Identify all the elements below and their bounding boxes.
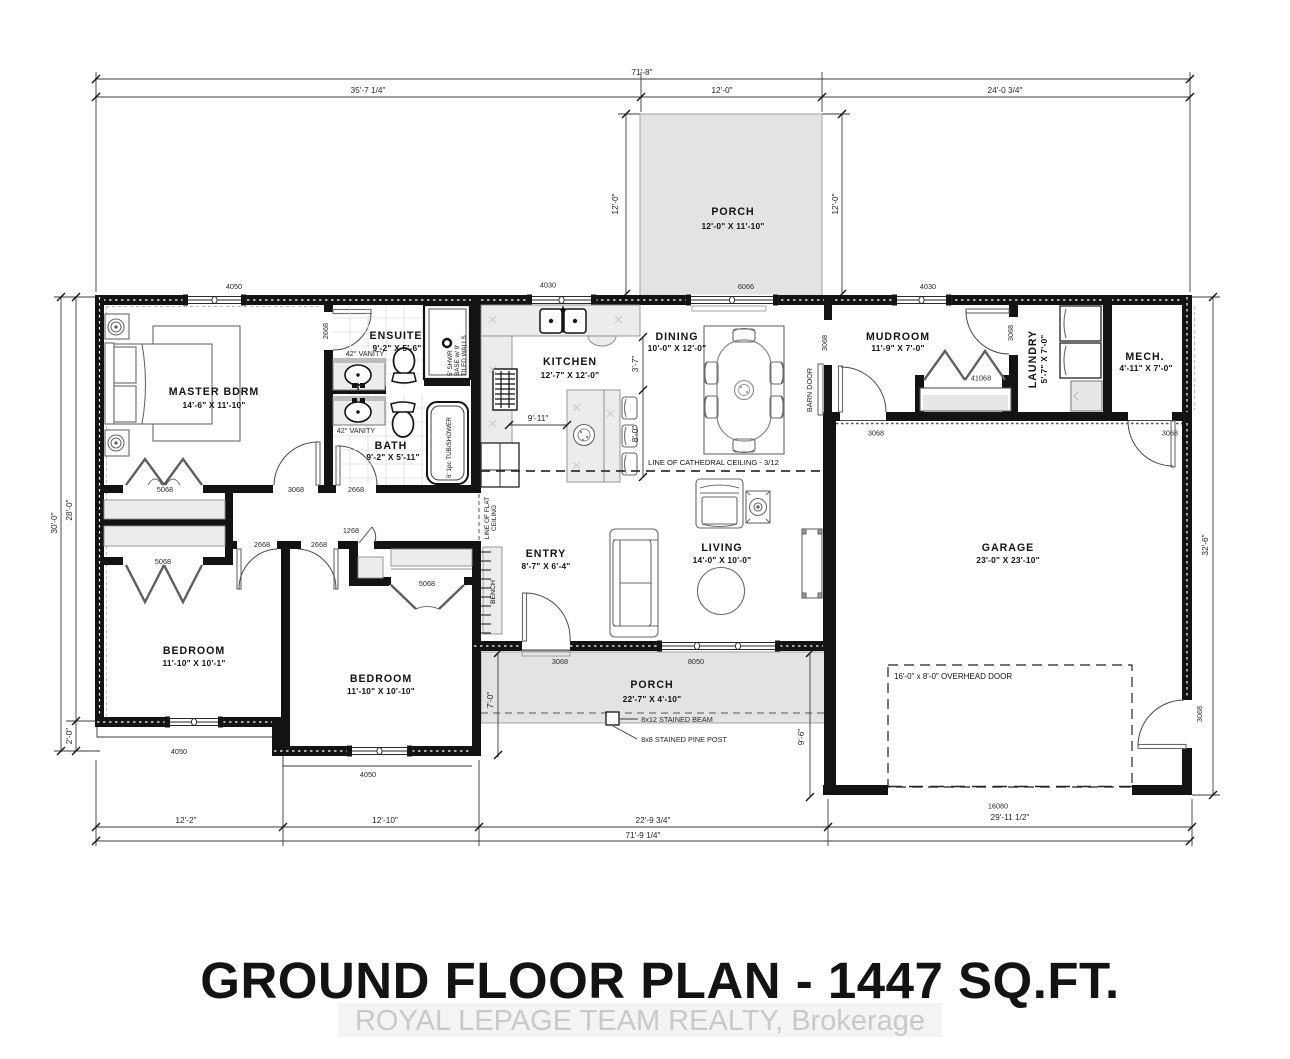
svg-text:TILED WALLS: TILED WALLS [461, 335, 468, 376]
svg-text:12'-2": 12'-2" [175, 815, 196, 825]
svg-text:3068: 3068 [868, 429, 884, 438]
svg-text:KITCHEN: KITCHEN [543, 356, 597, 368]
svg-text:14'-6" X 11'-10": 14'-6" X 11'-10" [182, 400, 245, 410]
svg-text:9'-11": 9'-11" [528, 413, 549, 423]
svg-text:3068: 3068 [820, 335, 829, 351]
svg-text:MECH.: MECH. [1125, 351, 1164, 363]
svg-text:22'-7" X 4'-10": 22'-7" X 4'-10" [623, 694, 682, 704]
svg-text:29'-11 1/2": 29'-11 1/2" [991, 812, 1030, 822]
svg-text:DINING: DINING [655, 331, 698, 343]
svg-text:2'-0": 2'-0" [64, 728, 74, 745]
svg-text:CEILING: CEILING [491, 505, 498, 531]
svg-text:12'-7" X 12'-0": 12'-7" X 12'-0" [541, 370, 600, 380]
svg-text:12'-10": 12'-10" [372, 815, 398, 825]
svg-text:22'-9 3/4": 22'-9 3/4" [636, 815, 671, 825]
svg-text:LIVING: LIVING [701, 542, 742, 554]
svg-text:11'-9" X 7'-0": 11'-9" X 7'-0" [871, 343, 924, 353]
svg-text:10'-0" X 12'-0": 10'-0" X 12'-0" [648, 343, 707, 353]
svg-text:16080: 16080 [988, 802, 1008, 811]
svg-text:12'-0": 12'-0" [830, 193, 840, 214]
svg-text:11'-10" X 10'-1": 11'-10" X 10'-1" [162, 658, 225, 668]
svg-text:24'-0 3/4": 24'-0 3/4" [988, 85, 1023, 95]
svg-text:2668: 2668 [321, 323, 330, 339]
svg-text:12'-0": 12'-0" [711, 85, 732, 95]
svg-text:4030: 4030 [540, 281, 556, 290]
svg-text:3'-7": 3'-7" [630, 356, 640, 373]
svg-text:GARAGE: GARAGE [982, 542, 1035, 554]
svg-text:71'-8": 71'-8" [631, 67, 652, 77]
svg-text:ROYAL LEPAGE TEAM REALTY, Brok: ROYAL LEPAGE TEAM REALTY, Brokerage [355, 1005, 925, 1037]
svg-text:5' SHWR: 5' SHWR [447, 350, 454, 376]
svg-text:8'-0": 8'-0" [630, 426, 640, 443]
svg-text:MUDROOM: MUDROOM [866, 331, 930, 343]
svg-text:8x12 STAINED BEAM: 8x12 STAINED BEAM [641, 715, 713, 724]
svg-text:ENTRY: ENTRY [526, 548, 567, 560]
svg-text:2668: 2668 [311, 540, 327, 549]
svg-text:16'-0" x 8'-0" OVERHEAD DOOR: 16'-0" x 8'-0" OVERHEAD DOOR [894, 672, 1012, 681]
svg-text:7'-0": 7'-0" [485, 692, 495, 709]
svg-text:PORCH: PORCH [711, 206, 754, 218]
svg-text:BEDROOM: BEDROOM [350, 673, 412, 685]
svg-text:PORCH: PORCH [630, 679, 673, 691]
svg-text:5068: 5068 [157, 485, 173, 494]
svg-text:8'-7" X 6'-4": 8'-7" X 6'-4" [522, 561, 571, 571]
svg-text:5068: 5068 [419, 579, 435, 588]
svg-text:42" VANITY: 42" VANITY [346, 349, 385, 358]
svg-text:41068: 41068 [971, 374, 991, 383]
svg-text:71'-9 1/4": 71'-9 1/4" [626, 830, 661, 840]
svg-text:14'-0" X 10'-0": 14'-0" X 10'-0" [693, 555, 752, 565]
svg-text:9'-2" X 5'-11": 9'-2" X 5'-11" [366, 452, 419, 462]
svg-text:5'-7" X 7'-0": 5'-7" X 7'-0" [1039, 335, 1049, 384]
svg-text:3068: 3068 [1006, 325, 1015, 341]
svg-text:BENCH: BENCH [490, 580, 497, 604]
svg-text:3068: 3068 [552, 657, 568, 666]
svg-text:35'-7 1/4": 35'-7 1/4" [351, 85, 386, 95]
svg-text:23'-0" X 23'-10": 23'-0" X 23'-10" [976, 555, 1040, 565]
svg-text:8050: 8050 [688, 657, 704, 666]
svg-text:2668: 2668 [254, 540, 270, 549]
svg-text:4050: 4050 [171, 747, 187, 756]
svg-text:9'-6": 9'-6" [796, 729, 806, 746]
svg-text:LINE OF FLAT: LINE OF FLAT [484, 497, 491, 540]
svg-text:GROUND FLOOR PLAN - 1447 SQ.: GROUND FLOOR PLAN - 1447 SQ.FT. [200, 952, 1119, 1009]
svg-text:LINE OF CATHEDRAL CEILING - 3/: LINE OF CATHEDRAL CEILING - 3/12 [648, 458, 779, 467]
svg-text:LAUNDRY: LAUNDRY [1027, 330, 1039, 388]
svg-text:MASTER BDRM: MASTER BDRM [169, 386, 259, 398]
svg-text:12'-0" X 11'-10": 12'-0" X 11'-10" [701, 221, 764, 231]
svg-text:3068: 3068 [1162, 429, 1178, 438]
svg-text:12'-0": 12'-0" [610, 193, 620, 214]
svg-text:8x8 STAINED PINE POST: 8x8 STAINED PINE POST [641, 735, 727, 744]
svg-text:4050: 4050 [360, 770, 376, 779]
svg-text:6' 1pc TUB/SHOWER: 6' 1pc TUB/SHOWER [446, 417, 453, 478]
svg-text:28'-0": 28'-0" [64, 499, 74, 520]
svg-text:32'-6": 32'-6" [1200, 534, 1210, 555]
svg-text:2668: 2668 [348, 485, 364, 494]
svg-text:3068: 3068 [1195, 706, 1204, 722]
svg-text:BATH: BATH [375, 440, 408, 452]
svg-text:1268: 1268 [343, 526, 359, 535]
svg-text:30'-0": 30'-0" [49, 512, 59, 533]
svg-text:6066: 6066 [738, 282, 754, 291]
svg-text:BEDROOM: BEDROOM [163, 645, 225, 657]
svg-text:11'-10" X 10'-10": 11'-10" X 10'-10" [347, 686, 415, 696]
svg-text:4'-11" X 7'-0": 4'-11" X 7'-0" [1119, 363, 1172, 373]
svg-text:3068: 3068 [288, 485, 304, 494]
svg-text:ENSUITE: ENSUITE [370, 330, 423, 342]
svg-text:42" VANITY: 42" VANITY [337, 426, 376, 435]
svg-text:BASE w/ 9': BASE w/ 9' [454, 345, 461, 376]
svg-text:4030: 4030 [920, 282, 936, 291]
svg-text:5068: 5068 [155, 557, 171, 566]
svg-text:4050: 4050 [226, 282, 242, 291]
svg-text:BARN DOOR: BARN DOOR [805, 368, 814, 412]
